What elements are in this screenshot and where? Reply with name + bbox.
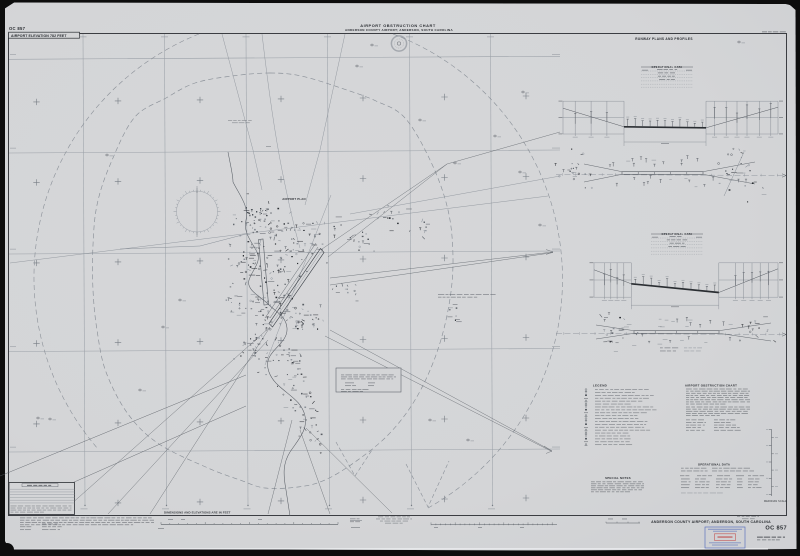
svg-text:OPERATIONAL DATA: OPERATIONAL DATA	[652, 65, 683, 69]
svg-text:LEGEND: LEGEND	[593, 384, 608, 388]
svg-text:AIRPORT PLAN: AIRPORT PLAN	[282, 197, 305, 201]
svg-text:RUNWAY PLANS AND PROFILES: RUNWAY PLANS AND PROFILES	[635, 37, 693, 41]
svg-text:MERIDIAN SCALE: MERIDIAN SCALE	[764, 500, 787, 503]
svg-text:OC 857: OC 857	[765, 526, 787, 532]
svg-text:OC 857: OC 857	[9, 26, 26, 31]
svg-text:OPERATIONAL DATA: OPERATIONAL DATA	[698, 462, 730, 466]
svg-text:ANDERSON COUNTY AIRPORT; ANDE: ANDERSON COUNTY AIRPORT; ANDERSON, SOUTH…	[345, 28, 453, 32]
svg-text:SPECIAL NOTES: SPECIAL NOTES	[605, 476, 631, 480]
svg-text:AIRPORT OBSTRUCTION CHART: AIRPORT OBSTRUCTION CHART	[685, 384, 737, 388]
svg-text:OPERATIONAL DATA: OPERATIONAL DATA	[662, 232, 693, 236]
svg-text:DIMENSIONS AND ELEVATIONS A: DIMENSIONS AND ELEVATIONS ARE IN FEET	[164, 510, 231, 514]
svg-text:ANDERSON COUNTY AIRPORT; ANDE: ANDERSON COUNTY AIRPORT; ANDERSON, SOUTH…	[651, 520, 771, 524]
svg-text:AIRPORT ELEVATION 782 FEET: AIRPORT ELEVATION 782 FEET	[11, 34, 67, 38]
